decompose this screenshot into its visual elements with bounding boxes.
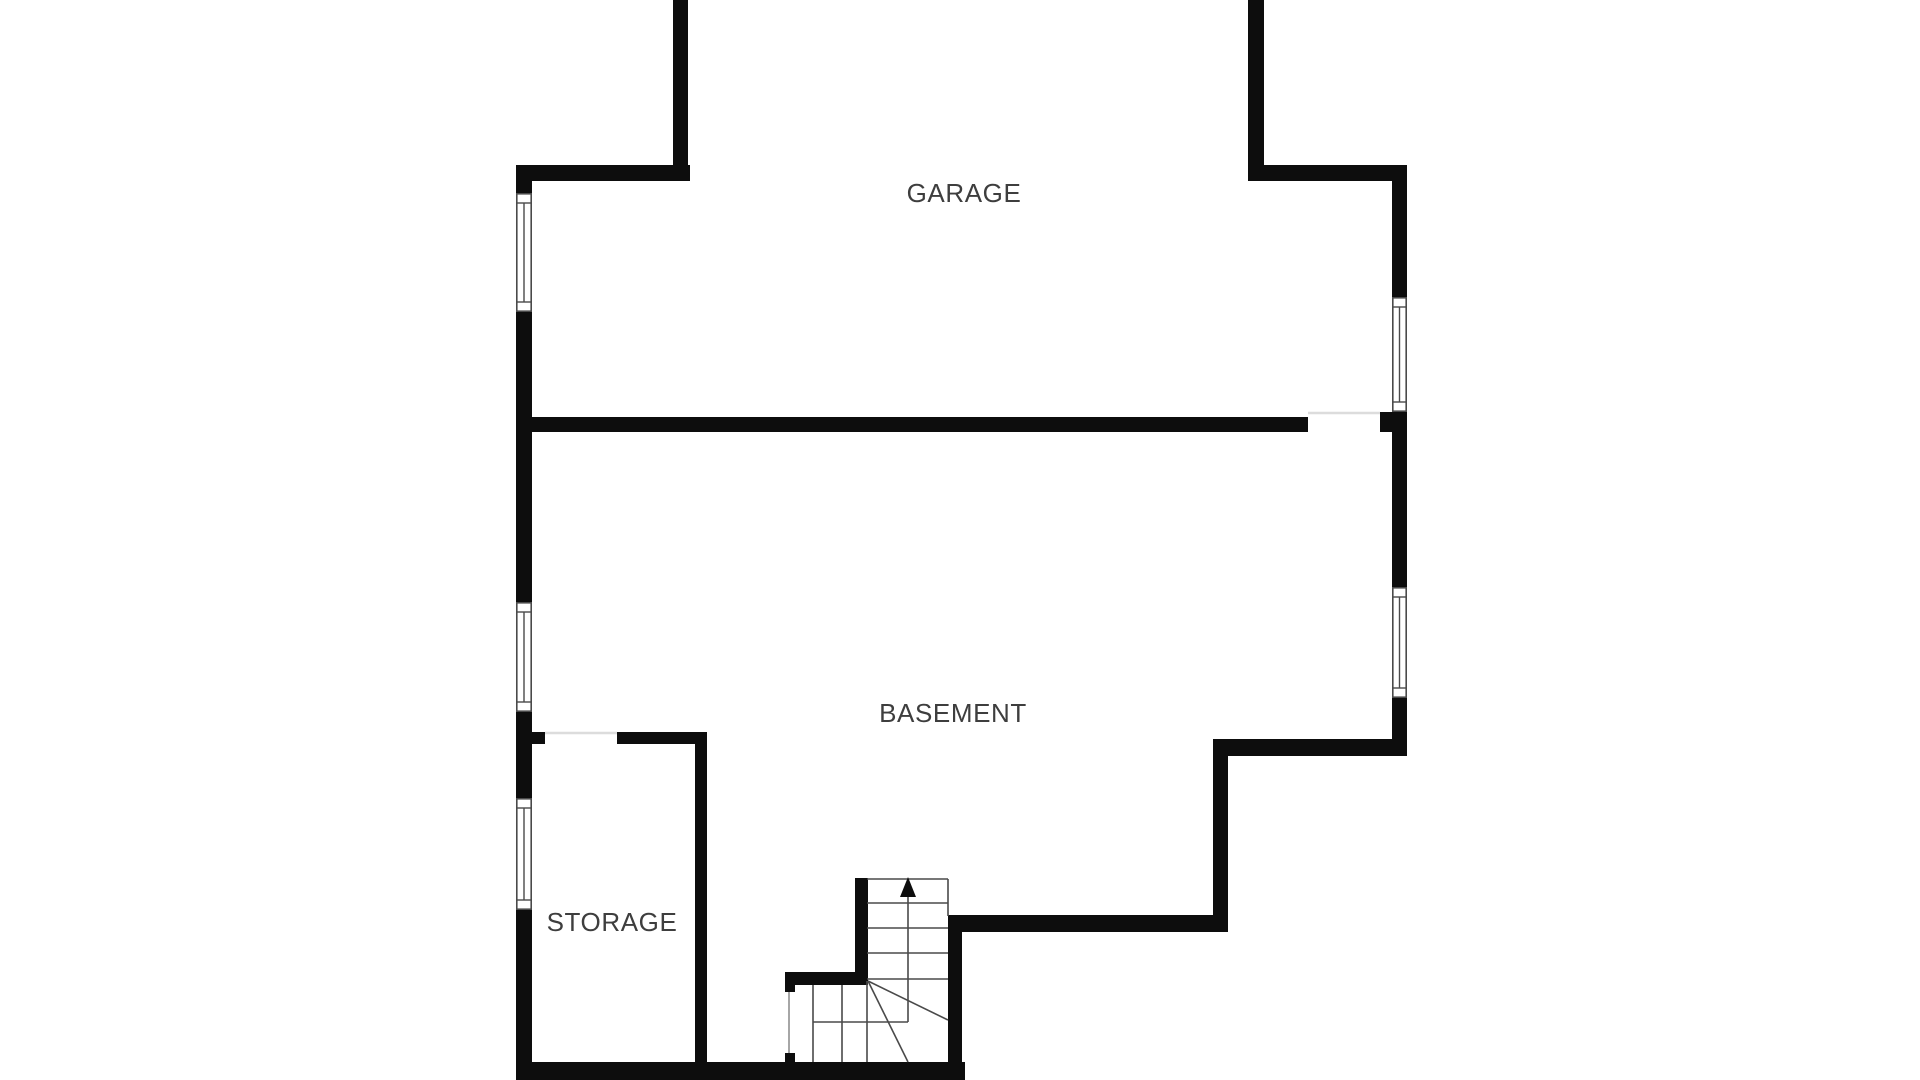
wall-step-horizontal-lower <box>948 915 1228 932</box>
wall-stairs-top <box>785 972 867 985</box>
wall-step-vertical <box>1213 739 1228 932</box>
wall-stairs-door-stub-bottom <box>785 1053 795 1065</box>
staircase <box>813 877 948 1062</box>
window-left-2 <box>517 603 531 711</box>
wall-step-horizontal-upper <box>1213 739 1407 756</box>
window-right-2 <box>1393 588 1406 697</box>
wall-garage-top-right-horizontal <box>1248 165 1407 181</box>
window-left-3 <box>517 799 531 909</box>
wall-right-segment-1 <box>1392 165 1407 297</box>
wall-storage-right <box>695 732 707 1080</box>
floor-plan-canvas: GARAGE BASEMENT STORAGE <box>0 0 1920 1080</box>
windows <box>517 194 1406 909</box>
wall-bottom <box>516 1062 965 1080</box>
wall-garage-top-left-horizontal <box>516 165 690 181</box>
window-right-1 <box>1393 298 1406 411</box>
wall-storage-top-stub <box>532 732 545 744</box>
basement-label: BASEMENT <box>879 698 1027 728</box>
floor-plan: GARAGE BASEMENT STORAGE <box>0 0 1920 1080</box>
window-left-1 <box>517 194 531 311</box>
wall-left-segment-3 <box>516 712 532 798</box>
wall-garage-top-right-vertical <box>1248 0 1264 181</box>
stairs-up-arrow-icon <box>900 877 916 897</box>
garage-label: GARAGE <box>907 178 1022 208</box>
wall-right-segment-2 <box>1392 412 1407 587</box>
storage-label: STORAGE <box>547 907 678 937</box>
wall-left-segment-1 <box>516 165 532 193</box>
wall-left-segment-4 <box>516 910 532 1080</box>
wall-storage-top <box>617 732 707 744</box>
wall-stairs-right <box>948 915 962 1080</box>
wall-garage-basement-divider <box>532 417 1308 432</box>
room-labels: GARAGE BASEMENT STORAGE <box>547 178 1027 937</box>
wall-stairs-left <box>855 878 868 985</box>
wall-basement-door-jamb <box>1380 412 1392 432</box>
wall-left-segment-2 <box>516 312 532 602</box>
wall-garage-top-left-vertical <box>673 0 688 181</box>
wall-stairs-door-stub-top <box>785 985 795 992</box>
